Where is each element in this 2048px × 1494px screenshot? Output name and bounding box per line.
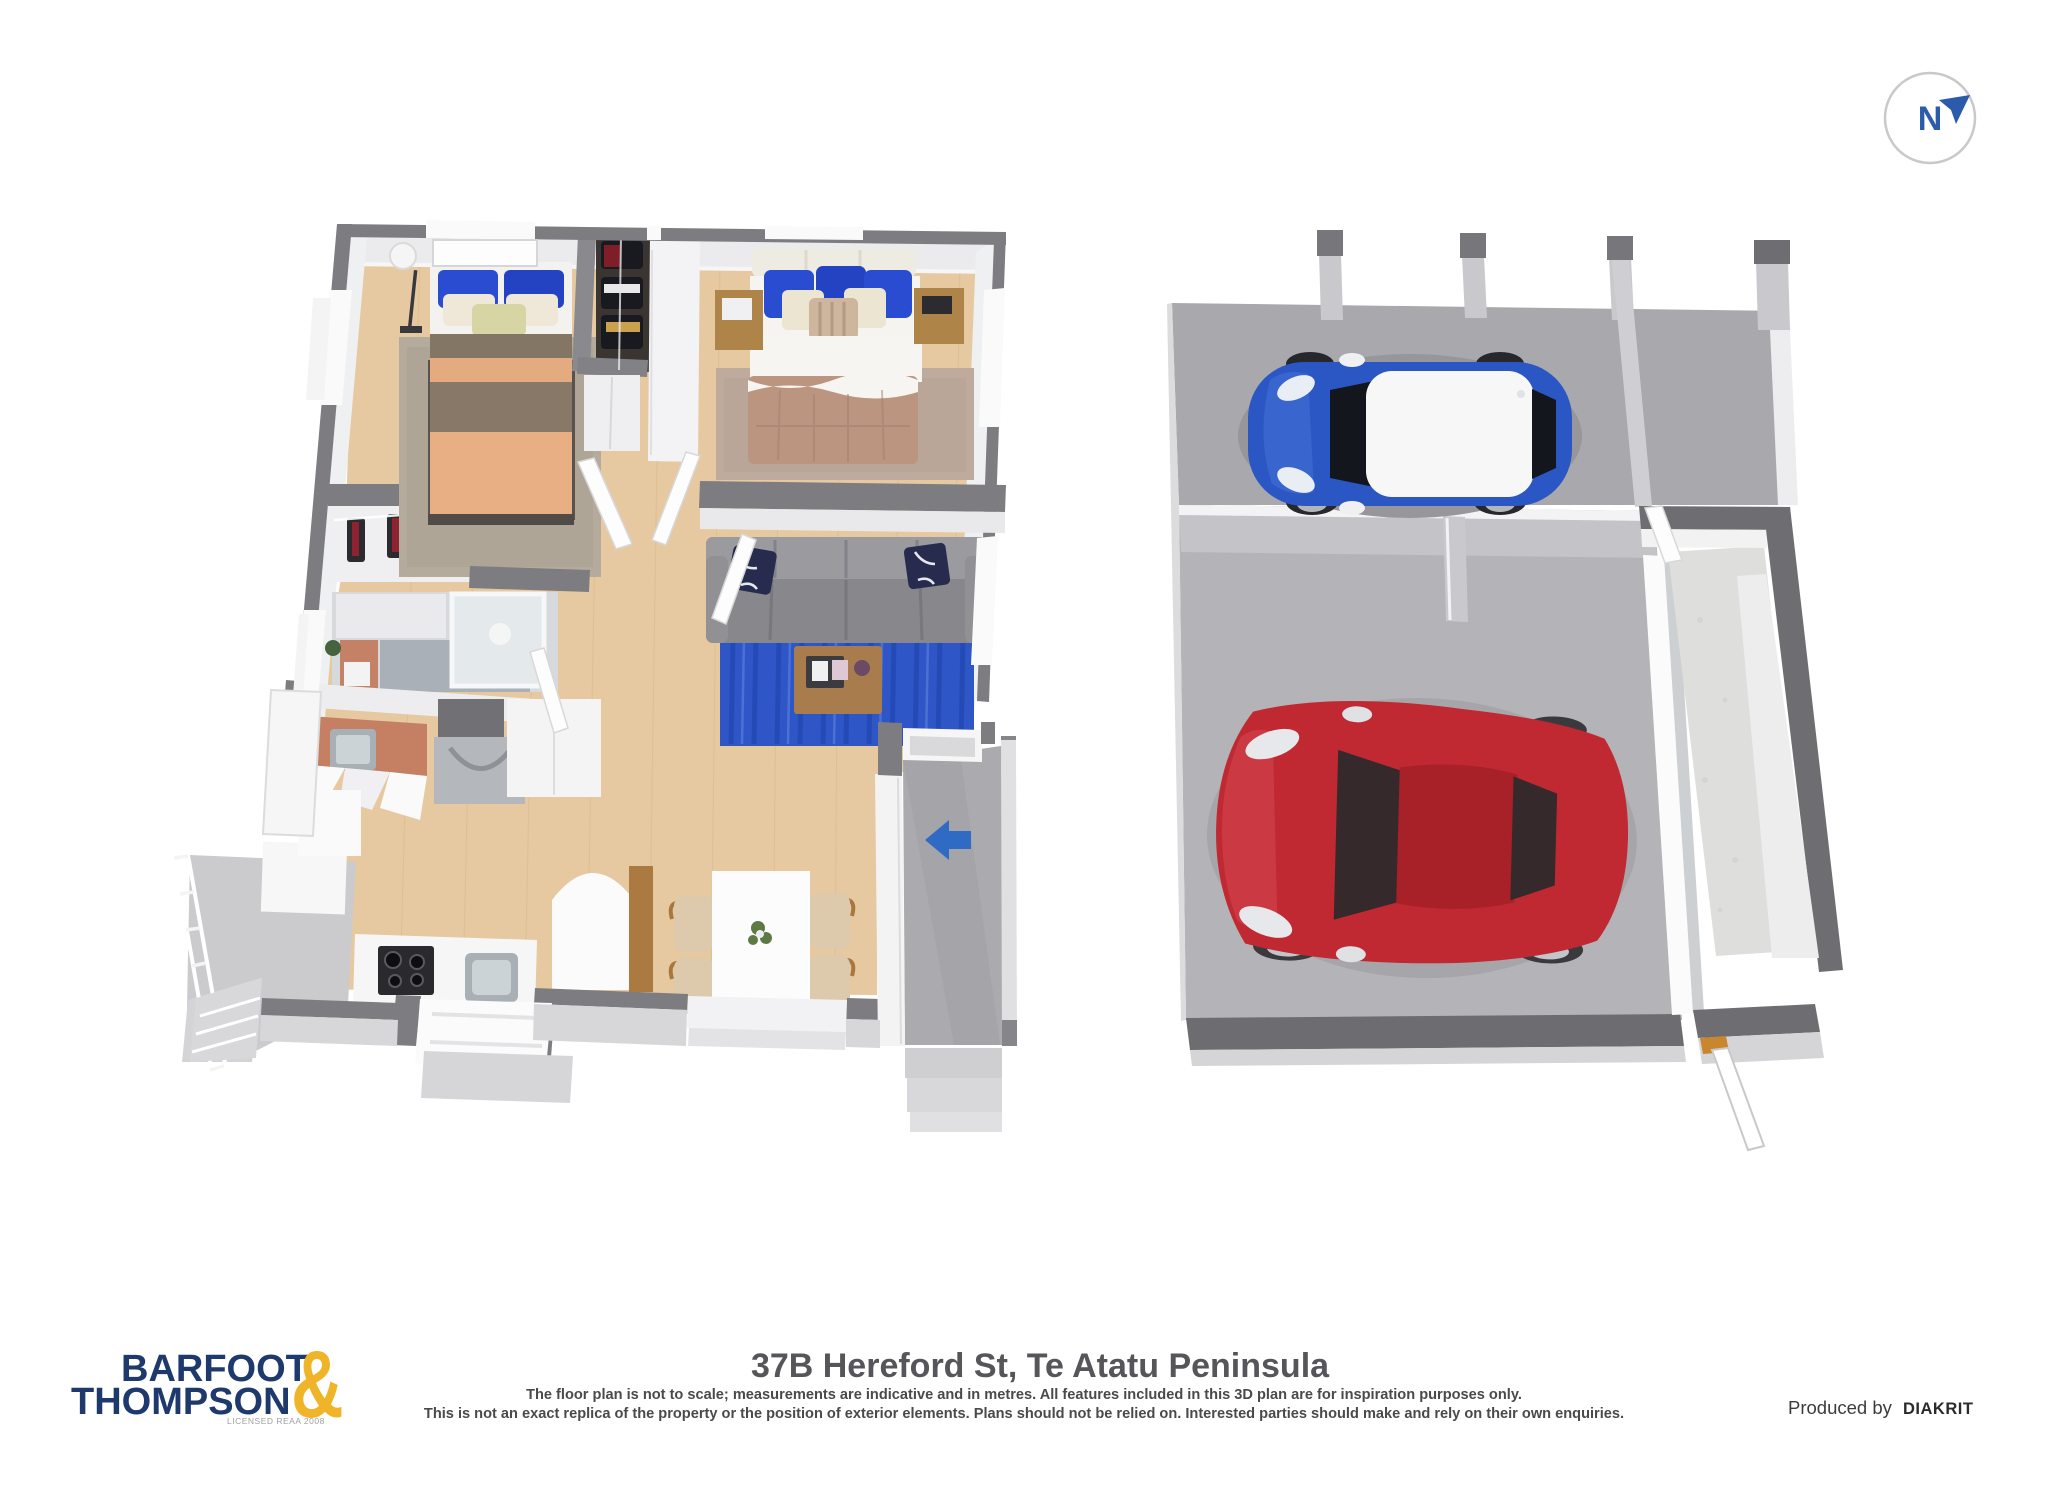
svg-text:N: N	[1918, 100, 1943, 138]
svg-text:This is not an exact replica o: This is not an exact replica of the prop…	[424, 1406, 1624, 1422]
svg-text:Produced by: Produced by	[1788, 1397, 1893, 1418]
svg-text:DIAKRIT: DIAKRIT	[1903, 1400, 1973, 1418]
svg-text:LICENSED REAA 2008: LICENSED REAA 2008	[227, 1416, 325, 1426]
svg-text:The floor plan is not to scale: The floor plan is not to scale; measurem…	[526, 1387, 1522, 1403]
svg-text:37B Hereford St, Te Atatu Peni: 37B Hereford St, Te Atatu Peninsula	[751, 1347, 1330, 1385]
